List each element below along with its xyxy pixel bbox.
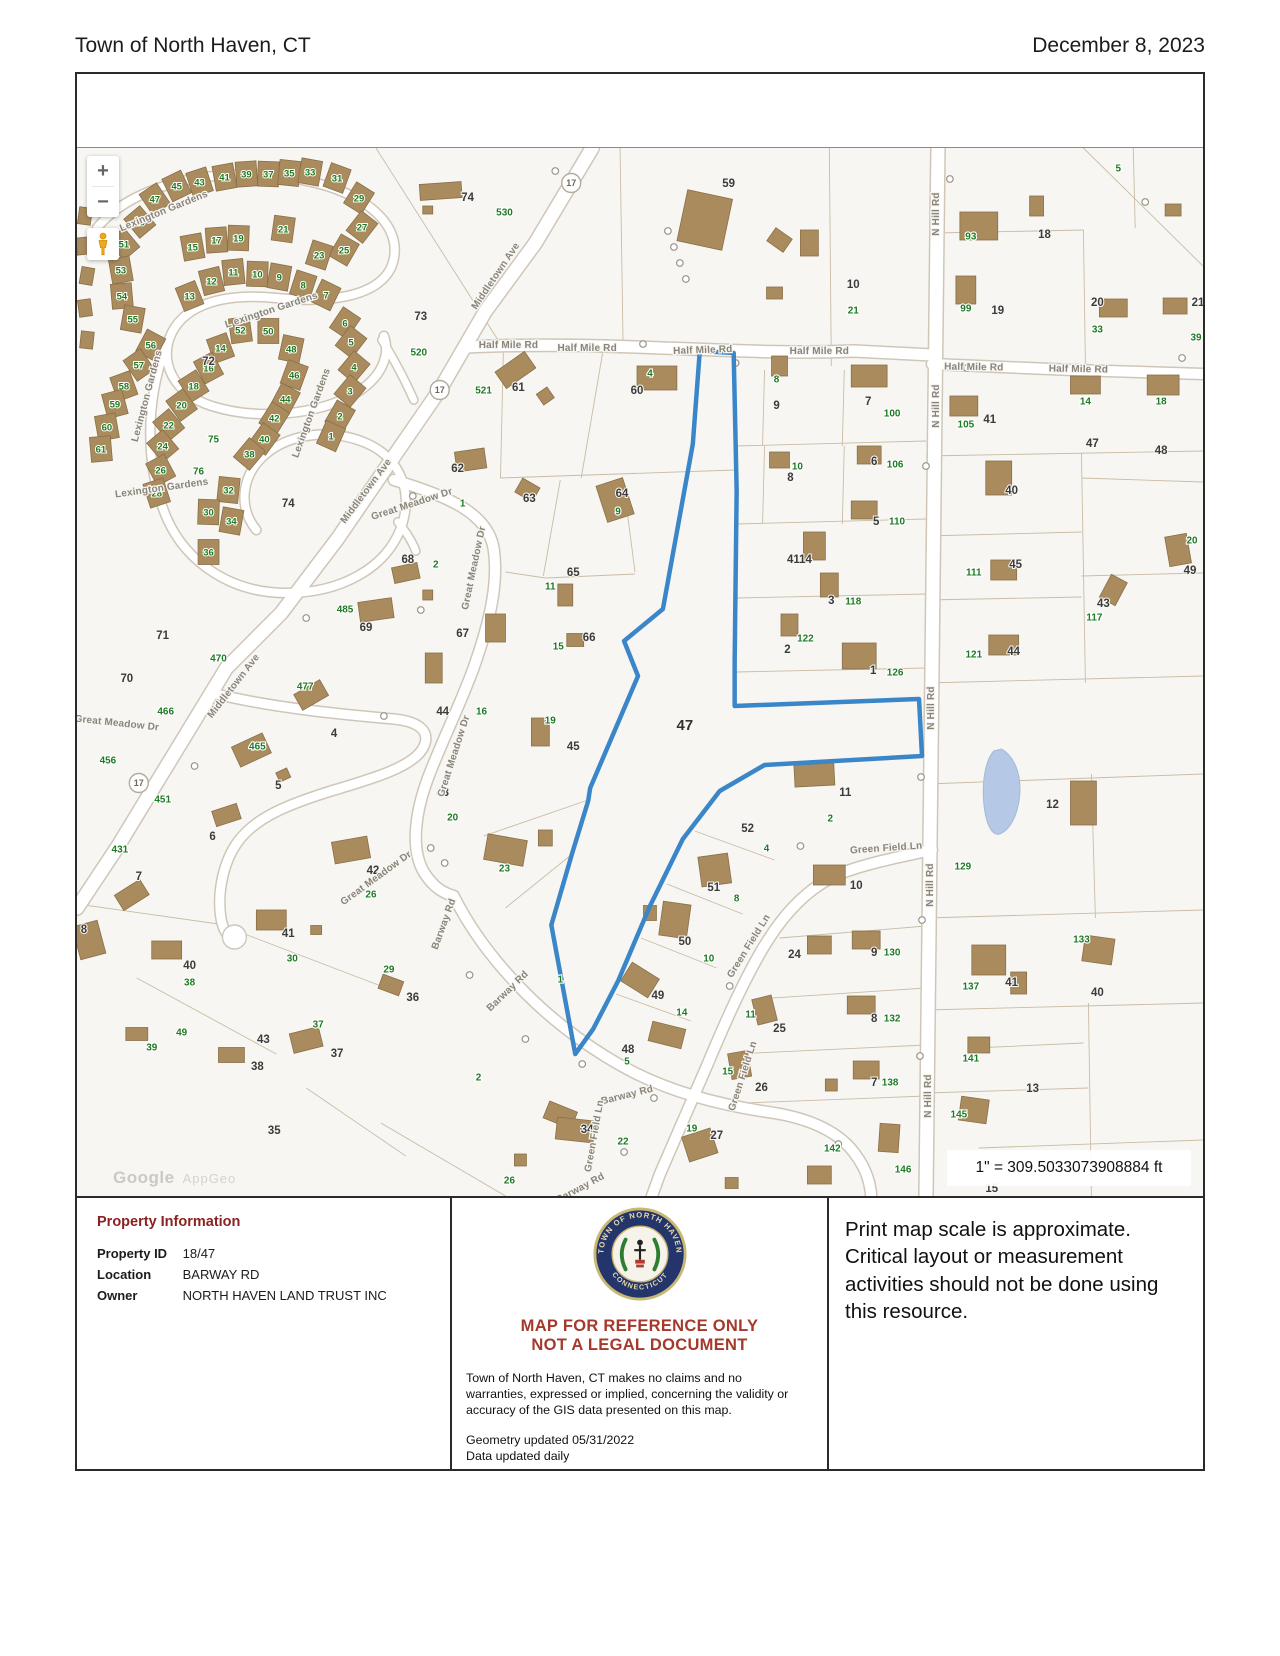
building — [807, 1166, 831, 1184]
parcel-number: 67 — [456, 628, 469, 640]
unit-number: 21 — [278, 224, 289, 235]
top-spacer — [77, 74, 1203, 147]
house-number: 1 — [460, 498, 466, 509]
house-number: 106 — [887, 459, 904, 470]
parcel-number: 7 — [865, 396, 871, 408]
house-number: 520 — [410, 347, 427, 358]
building — [423, 590, 433, 600]
house-number: 118 — [845, 596, 862, 607]
house-number: 20 — [1187, 535, 1199, 546]
building — [80, 331, 95, 349]
house-number: 37 — [313, 1019, 325, 1030]
building — [1070, 376, 1100, 394]
parcel-number: 37 — [331, 1048, 344, 1060]
house-number: 477 — [297, 681, 314, 692]
parcel-number: 62 — [451, 463, 464, 475]
building — [972, 945, 1006, 975]
unit-number: 18 — [188, 381, 199, 392]
house-number: 33 — [1092, 324, 1104, 335]
house-number: 521 — [475, 385, 492, 396]
location-row: Location BARWAY RD — [97, 1267, 440, 1282]
unit-number: 39 — [241, 169, 252, 180]
parcel-number: 49 — [1184, 565, 1197, 577]
parcel-number: 12 — [1046, 799, 1059, 811]
parcel-number: 43 — [1097, 598, 1110, 610]
house-number: 75 — [208, 434, 220, 445]
parcel-number: 25 — [773, 1023, 786, 1035]
parcel-number: 8 — [871, 1013, 878, 1025]
building — [152, 941, 182, 959]
svg-text:17: 17 — [566, 178, 576, 188]
disclaimer-text: Town of North Haven, CT makes no claims … — [466, 1371, 796, 1419]
unit-number: 20 — [176, 400, 187, 411]
svg-text:17: 17 — [134, 778, 144, 788]
house-number: 1 — [558, 974, 564, 985]
parcel-number: 65 — [567, 567, 580, 579]
building — [567, 634, 584, 647]
house-number: 451 — [154, 794, 171, 805]
house-number: 122 — [797, 633, 814, 644]
building — [126, 1028, 148, 1041]
parcel-number: 70 — [120, 673, 133, 685]
house-number: 8 — [734, 893, 740, 904]
house-number: 19 — [686, 1123, 698, 1134]
building — [423, 206, 433, 214]
house-number: 8 — [774, 374, 780, 385]
building — [767, 287, 783, 299]
house-number: 4 — [647, 368, 653, 379]
map-scale-label: 1" = 309.5033073908884 ft — [947, 1150, 1191, 1186]
parcel-number: 27 — [710, 1130, 723, 1142]
building — [813, 865, 845, 885]
map-canvas[interactable]: 4341393735333129272523454749515354555657… — [77, 148, 1203, 1196]
building — [772, 356, 788, 376]
unit-number: 15 — [187, 242, 198, 253]
unit-number: 59 — [110, 399, 121, 410]
parcel-number: 11 — [839, 787, 852, 799]
house-number: 21 — [848, 305, 860, 316]
house-number: 4 — [764, 843, 770, 854]
unit-number: 51 — [119, 239, 130, 250]
parcel-number: 38 — [251, 1061, 264, 1073]
unit-number: 30 — [203, 507, 214, 518]
unit-number: 47 — [149, 194, 160, 205]
house-number: 19 — [545, 715, 557, 726]
building — [781, 614, 798, 636]
house-number: 30 — [287, 953, 299, 964]
building — [514, 1154, 526, 1166]
house-number: 141 — [963, 1053, 980, 1064]
parcel-number: 49 — [652, 990, 665, 1002]
road-label: Half Mile Rd — [1049, 363, 1109, 375]
property-info-title: Property Information — [97, 1214, 440, 1230]
house-number: 29 — [383, 964, 395, 975]
building — [1030, 196, 1044, 216]
unit-number: 19 — [233, 233, 244, 244]
owner-row: Owner NORTH HAVEN LAND TRUST INC — [97, 1288, 440, 1303]
road-label: N Hill Rd — [931, 384, 942, 427]
house-number: 470 — [210, 653, 227, 664]
house-number: 49 — [176, 1027, 188, 1038]
building — [558, 584, 573, 606]
parcel-number: 20 — [1091, 297, 1104, 309]
unit-number: 44 — [280, 394, 291, 405]
unit-number: 1 — [328, 431, 333, 442]
house-number: 142 — [824, 1143, 841, 1154]
house-number: 20 — [447, 812, 459, 823]
house-number: 117 — [1086, 612, 1103, 623]
unit-number: 61 — [96, 444, 107, 455]
parcel-number: 61 — [512, 382, 525, 394]
page-title: Town of North Haven, CT — [75, 34, 311, 58]
unit-number: 54 — [117, 291, 128, 302]
house-number: 130 — [884, 947, 901, 958]
parcel-number: 21 — [1192, 297, 1203, 309]
parcel-number: 5 — [873, 516, 880, 528]
building — [820, 573, 838, 597]
house-number: 2 — [828, 813, 834, 824]
building — [1163, 298, 1187, 314]
reference-line-2: NOT A LEGAL DOCUMENT — [452, 1336, 827, 1355]
building — [1147, 375, 1179, 395]
unit-number: 8 — [301, 280, 306, 291]
house-number: 132 — [884, 1013, 901, 1024]
building — [358, 598, 394, 623]
road-label: Half Mile Rd — [944, 361, 1004, 373]
unit-number: 23 — [314, 250, 325, 261]
parcel-number: 4 — [331, 728, 338, 740]
house-number: 138 — [882, 1077, 899, 1088]
data-updated: Data updated daily — [466, 1449, 569, 1463]
unit-number: 38 — [244, 449, 255, 460]
building — [968, 1037, 990, 1053]
house-number: 99 — [960, 303, 972, 314]
building — [311, 926, 322, 935]
unit-number: 3 — [347, 386, 352, 397]
unit-number: 4 — [351, 362, 357, 373]
parcel-number: 10 — [847, 279, 860, 291]
parcel-number: 48 — [1155, 445, 1168, 457]
house-number: 431 — [112, 844, 129, 855]
house-number: 39 — [1190, 332, 1202, 343]
parcel-number: 1 — [870, 665, 877, 677]
house-number: 23 — [499, 863, 511, 874]
parcel-number: 7 — [871, 1077, 877, 1089]
house-number: 16 — [476, 706, 488, 717]
unit-number: 29 — [354, 193, 365, 204]
unit-number: 48 — [286, 344, 297, 355]
parcel-number: 7 — [136, 871, 142, 883]
parcel-number: 48 — [622, 1044, 635, 1056]
house-number: 465 — [249, 741, 266, 752]
unit-number: 45 — [171, 181, 182, 192]
print-page: Town of North Haven, CT December 8, 2023… — [0, 0, 1280, 1656]
house-number: 2 — [433, 559, 439, 570]
parcel-number: 4114 — [787, 554, 812, 566]
house-number: 26 — [504, 1175, 516, 1186]
house-number: 146 — [895, 1164, 912, 1175]
house-number: 2 — [476, 1072, 482, 1083]
scale-note-panel: Print map scale is approximate. Critical… — [829, 1198, 1203, 1469]
property-id-row: Property ID 18/47 — [97, 1246, 440, 1261]
parcel-number: 47 — [1086, 438, 1099, 450]
building — [538, 830, 552, 846]
parcel-number: 74 — [461, 192, 474, 204]
pegman-icon — [94, 232, 112, 256]
unit-number: 6 — [342, 318, 347, 329]
house-number: 133 — [1073, 934, 1090, 945]
google-logo: Google — [113, 1168, 175, 1187]
owner-label: Owner — [97, 1288, 179, 1303]
unit-number: 24 — [157, 441, 168, 452]
house-number: 105 — [958, 419, 975, 430]
parcel-number: 9 — [773, 400, 779, 412]
house-number: 39 — [146, 1042, 158, 1053]
parcel-number: 19 — [991, 305, 1004, 317]
unit-number: 43 — [194, 177, 205, 188]
parcel-number: 69 — [360, 622, 373, 634]
parcel-number: 18 — [1038, 229, 1051, 241]
house-number: 11 — [545, 581, 556, 592]
building — [956, 276, 976, 304]
road-label: Half Mile Rd — [558, 343, 617, 354]
parcel-number: 2 — [784, 644, 790, 656]
unit-number: 50 — [263, 326, 274, 337]
google-watermark: GoogleAppGeo — [113, 1168, 236, 1188]
unit-number: 35 — [284, 168, 295, 179]
house-number: 137 — [963, 981, 980, 992]
unit-number: 7 — [323, 290, 328, 301]
parcel-number: 40 — [183, 960, 196, 972]
property-id-label: Property ID — [97, 1246, 179, 1261]
geometry-updated: Geometry updated 05/31/2022 — [466, 1433, 634, 1447]
parcel-number: 45 — [567, 741, 580, 753]
parcel-number: 63 — [523, 493, 536, 505]
unit-number: 13 — [184, 291, 195, 302]
unit-number: 34 — [226, 516, 237, 527]
unit-number: 33 — [305, 167, 316, 178]
parcel-number: 36 — [406, 992, 419, 1004]
house-number: 10 — [792, 461, 804, 472]
house-number: 100 — [884, 408, 901, 419]
parcel-number: 71 — [156, 630, 169, 642]
house-number: 18 — [1156, 396, 1168, 407]
unit-number: 25 — [339, 245, 350, 256]
zoom-in-button[interactable]: + — [87, 156, 119, 186]
unit-number: 41 — [219, 172, 230, 183]
unit-number: 17 — [211, 235, 222, 246]
building — [79, 267, 95, 286]
building — [770, 452, 790, 468]
unit-number: 42 — [269, 413, 280, 424]
location-label: Location — [97, 1267, 179, 1282]
building — [950, 396, 978, 416]
zoom-out-button[interactable]: − — [87, 187, 119, 217]
appgeo-logo: AppGeo — [183, 1171, 237, 1186]
parcel-number: 10 — [850, 880, 863, 892]
road-label: N Hill Rd — [931, 192, 942, 235]
road-label: N Hill Rd — [925, 863, 936, 906]
building — [825, 1079, 837, 1091]
unit-number: 27 — [357, 222, 368, 233]
zoom-controls: + − — [87, 156, 119, 217]
unit-number: 57 — [134, 360, 145, 371]
parcel-number: 59 — [722, 178, 735, 190]
unit-number: 2 — [337, 411, 342, 422]
highlighted-parcel-number: 47 — [677, 717, 694, 734]
house-number: 129 — [955, 861, 972, 872]
house-number: 14 — [1080, 396, 1092, 407]
parcel-number: 6 — [871, 456, 877, 468]
parcel-number: 41 — [282, 928, 295, 940]
parcel-number: 35 — [268, 1125, 281, 1137]
location-value: BARWAY RD — [183, 1267, 260, 1282]
parcel-number: 45 — [1009, 559, 1022, 571]
page-header: Town of North Haven, CT December 8, 2023 — [75, 34, 1205, 58]
road-label: N Hill Rd — [923, 1074, 934, 1117]
unit-number: 10 — [252, 269, 263, 280]
unit-number: 5 — [348, 337, 353, 348]
parcel-number: 44 — [1007, 646, 1020, 658]
parcel-number: 44 — [436, 706, 449, 718]
unit-number: 26 — [155, 465, 166, 476]
unit-number: 32 — [223, 485, 234, 496]
parcel-number: 8 — [81, 924, 88, 936]
unit-number: 11 — [228, 267, 238, 278]
parcel-number: 41 — [983, 414, 996, 426]
house-number: 126 — [887, 667, 904, 678]
building — [1070, 781, 1096, 825]
house-number: 110 — [889, 516, 906, 527]
unit-number: 37 — [263, 169, 274, 180]
road-label: Half Mile Rd — [673, 344, 733, 357]
unit-number: 46 — [289, 370, 300, 381]
reference-panel: TOWN OF NORTH HAVEN CONNECTICUT MAP FOR … — [452, 1198, 829, 1469]
building — [857, 446, 881, 464]
house-number: 38 — [184, 977, 196, 988]
parcel-number: 60 — [631, 385, 644, 397]
house-number: 121 — [966, 649, 983, 660]
parcel-number: 64 — [616, 488, 629, 500]
building — [847, 996, 875, 1014]
house-number: 456 — [100, 755, 117, 766]
parcel-number: 26 — [755, 1082, 768, 1094]
road-label: Half Mile Rd — [790, 346, 849, 357]
unit-number: 14 — [215, 343, 226, 354]
parcel-number: 66 — [583, 632, 596, 644]
house-number: 76 — [193, 466, 205, 477]
house-number: 466 — [157, 706, 174, 717]
unit-number: 53 — [116, 265, 127, 276]
unit-number: 55 — [128, 314, 139, 325]
house-number: 11 — [745, 1009, 756, 1020]
building — [800, 230, 818, 256]
svg-text:17: 17 — [435, 385, 445, 395]
building — [425, 653, 442, 683]
house-number: 10 — [703, 953, 715, 964]
owner-value: NORTH HAVEN LAND TRUST INC — [183, 1288, 387, 1303]
parcel-number: 68 — [401, 554, 414, 566]
building — [878, 1123, 900, 1152]
parcel-number: 3 — [828, 595, 834, 607]
unit-number: 40 — [259, 434, 270, 445]
building — [725, 1178, 738, 1189]
unit-number: 60 — [102, 422, 113, 433]
parcel-number: 50 — [678, 936, 691, 948]
property-info-panel: Property Information Property ID 18/47 L… — [77, 1198, 452, 1469]
parcel-number: 73 — [414, 311, 427, 323]
town-seal: TOWN OF NORTH HAVEN CONNECTICUT — [592, 1206, 688, 1302]
unit-number: 31 — [332, 173, 343, 184]
document-frame: 4341393735333129272523454749515354555657… — [75, 72, 1205, 1471]
parcel-number: 24 — [788, 949, 801, 961]
house-number: 14 — [676, 1007, 688, 1018]
road-label: N Hill Rd — [926, 686, 937, 729]
parcel-number: 43 — [257, 1034, 270, 1046]
parcel-number: 40 — [1005, 485, 1018, 497]
house-number: 9 — [615, 506, 621, 517]
house-number: 485 — [337, 604, 354, 615]
property-id-value: 18/47 — [183, 1246, 216, 1261]
road-label: Half Mile Rd — [479, 340, 538, 351]
house-number: 530 — [496, 207, 513, 218]
house-number: 5 — [624, 1056, 630, 1067]
house-number: 145 — [951, 1109, 968, 1120]
building — [659, 901, 691, 939]
house-number: 111 — [966, 567, 982, 578]
house-number: 15 — [553, 641, 565, 652]
parcel-number: 8 — [787, 472, 794, 484]
house-number: 15 — [722, 1066, 734, 1077]
parcel-number: 5 — [275, 780, 282, 792]
unit-number: 22 — [163, 420, 174, 431]
unit-number: 36 — [203, 547, 214, 558]
reference-line-1: MAP FOR REFERENCE ONLY — [452, 1317, 827, 1336]
update-info: Geometry updated 05/31/2022 Data updated… — [466, 1433, 796, 1465]
parcel-number: 13 — [1026, 1083, 1039, 1095]
parcel-number: 40 — [1091, 987, 1104, 999]
building — [851, 365, 887, 387]
scale-note-text: Print map scale is approximate. Critical… — [845, 1216, 1189, 1325]
map-container: 4341393735333129272523454749515354555657… — [77, 147, 1203, 1198]
building — [77, 299, 92, 318]
house-number: 93 — [965, 231, 977, 242]
building — [486, 614, 506, 642]
building — [218, 1048, 244, 1063]
building — [1165, 204, 1181, 216]
parcel-number: 6 — [209, 831, 215, 843]
footer-panels: Property Information Property ID 18/47 L… — [77, 1198, 1203, 1469]
unit-number: 12 — [206, 276, 217, 287]
parcel-number: 72 — [202, 356, 215, 368]
parcel-number: 41 — [1005, 977, 1018, 989]
parcel-number: 52 — [741, 823, 754, 835]
pegman-button[interactable] — [87, 228, 119, 260]
building — [419, 182, 462, 201]
parcel-number: 9 — [871, 947, 877, 959]
building — [807, 936, 831, 954]
building — [794, 763, 835, 787]
property-info-rows: Property ID 18/47 Location BARWAY RD Own… — [97, 1246, 440, 1303]
cul-de-sac — [222, 925, 246, 949]
house-number: 22 — [618, 1136, 630, 1147]
unit-number: 9 — [277, 272, 282, 283]
house-number: 5 — [1116, 163, 1122, 174]
page-date: December 8, 2023 — [1032, 34, 1205, 58]
parcel-number: 74 — [282, 498, 295, 510]
parcel-number: 51 — [707, 882, 720, 894]
